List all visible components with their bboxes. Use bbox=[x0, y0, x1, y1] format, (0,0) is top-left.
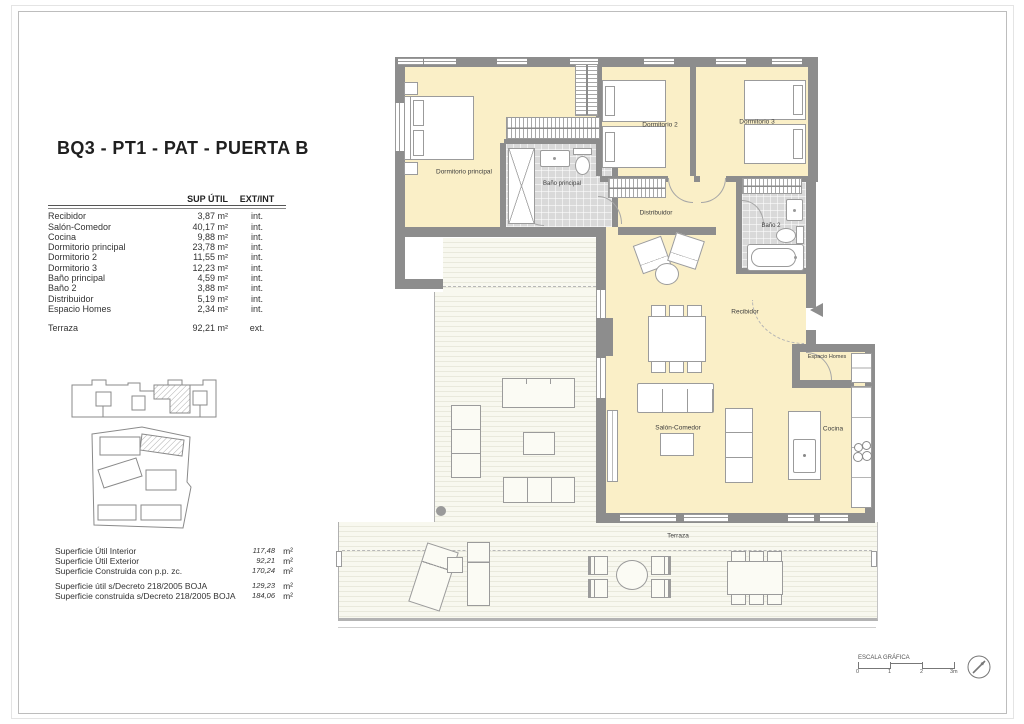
tv-sideboard bbox=[607, 410, 618, 482]
pillow bbox=[413, 100, 424, 126]
summary-row: Superficie Útil Exterior92,21m² bbox=[55, 556, 293, 566]
toilet bbox=[575, 156, 590, 175]
wall bbox=[792, 344, 875, 352]
table-row: Dormitorio 211,55 m²int. bbox=[48, 252, 286, 262]
room-label-espacio-homes: Espacio Homes bbox=[808, 354, 847, 360]
room-label-dormitorio-2: Dormitorio 2 bbox=[642, 122, 677, 129]
summary-row: Superficie construida s/Decreto 218/2005… bbox=[55, 591, 293, 601]
sliding-door bbox=[684, 514, 728, 522]
shower bbox=[508, 148, 535, 224]
partition bbox=[736, 182, 742, 274]
table-header-row: SUP ÚTIL EXT/INT bbox=[48, 194, 286, 204]
graphic-scale-title: ESCALA GRÁFICA bbox=[858, 655, 910, 661]
sliding-door bbox=[620, 514, 676, 522]
terrace-dashed-line bbox=[342, 550, 872, 551]
scale-tick bbox=[922, 662, 923, 669]
pillow bbox=[793, 129, 803, 159]
railing-post bbox=[871, 551, 877, 567]
page-title: BQ3 - PT1 - PAT - PUERTA B bbox=[57, 138, 309, 159]
toilet-tank bbox=[573, 148, 592, 155]
scale-tick bbox=[890, 662, 891, 669]
wardrobe bbox=[506, 117, 600, 139]
outdoor-sofa bbox=[502, 378, 575, 408]
room-label-dormitorio-principal: Dormitorio principal bbox=[436, 169, 492, 176]
sink-drain bbox=[793, 209, 796, 212]
side-table bbox=[655, 263, 679, 285]
wardrobe bbox=[575, 64, 598, 116]
wall bbox=[395, 57, 818, 67]
scale-tick bbox=[954, 662, 955, 669]
partition bbox=[500, 143, 506, 237]
table-row: Dormitorio principal23,78 m²int. bbox=[48, 242, 286, 252]
dining-table bbox=[648, 316, 706, 362]
outdoor-sofa bbox=[503, 477, 575, 503]
pillow bbox=[413, 130, 424, 156]
scale-tick-label: 1 bbox=[888, 669, 891, 675]
sun-lounger bbox=[467, 542, 490, 606]
outdoor-sofa bbox=[451, 405, 481, 478]
partition bbox=[504, 139, 618, 144]
wall bbox=[792, 380, 854, 388]
sink-drain bbox=[553, 157, 556, 160]
outdoor-chair bbox=[588, 579, 608, 598]
scale-tick bbox=[858, 662, 859, 669]
header-rule bbox=[48, 205, 286, 209]
outdoor-coffee-table bbox=[523, 432, 555, 455]
wall bbox=[694, 176, 700, 182]
scale-tick-label: 2 bbox=[920, 669, 923, 675]
table-row: Salón-Comedor40,17 m²int. bbox=[48, 222, 286, 232]
bathtub-basin bbox=[751, 248, 796, 267]
room-label-salon-comedor: Salón-Comedor bbox=[655, 425, 701, 432]
table-row: Dormitorio 312,23 m²int. bbox=[48, 263, 286, 273]
bathtub-drain bbox=[794, 256, 797, 259]
sofa bbox=[637, 383, 714, 413]
window bbox=[424, 58, 456, 65]
summary-row: Superficie Construida con p.p. zc.170,24… bbox=[55, 566, 293, 576]
room-label-terraza: Terraza bbox=[667, 533, 689, 540]
hob-burner bbox=[862, 451, 872, 461]
key-plan-floor bbox=[70, 377, 218, 421]
key-plan-site bbox=[84, 424, 196, 534]
pillow bbox=[605, 86, 615, 116]
faucet bbox=[803, 454, 806, 457]
window bbox=[716, 58, 746, 65]
table-row: Recibidor3,87 m²int. bbox=[48, 211, 286, 221]
terrace-dashed-line bbox=[443, 286, 596, 287]
scale-tick-label: 0 bbox=[856, 669, 859, 675]
wall bbox=[806, 180, 816, 308]
wall bbox=[395, 279, 443, 289]
nightstand bbox=[404, 82, 418, 95]
railing-post bbox=[336, 551, 342, 567]
window bbox=[596, 290, 606, 318]
window bbox=[772, 58, 802, 65]
scale-tick-label: 3m bbox=[950, 669, 958, 675]
col-header-type: EXT/INT bbox=[228, 194, 286, 204]
table-row: Espacio Homes2,34 m²int. bbox=[48, 304, 286, 314]
floorplan-sheet: BQ3 - PT1 - PAT - PUERTA B SUP ÚTIL EXT/… bbox=[0, 0, 1024, 724]
window bbox=[398, 58, 423, 65]
wardrobe bbox=[608, 178, 666, 198]
wall bbox=[808, 57, 818, 182]
coffee-table bbox=[660, 433, 694, 456]
room-label-bano-principal: Baño principal bbox=[543, 181, 581, 187]
table-row: Baño 23,88 m²int. bbox=[48, 283, 286, 293]
area-table: SUP ÚTIL EXT/INT Recibidor3,87 m²int. Sa… bbox=[48, 194, 286, 334]
outdoor-chair bbox=[651, 556, 671, 575]
summary-row: Superficie Útil Interior117,48m² bbox=[55, 546, 293, 556]
terrace-post bbox=[436, 506, 446, 516]
window bbox=[596, 358, 606, 398]
kitchen-tall-units bbox=[851, 353, 872, 383]
toilet bbox=[776, 228, 796, 243]
scale-segment bbox=[890, 663, 922, 669]
terrace-left-upper bbox=[443, 238, 596, 292]
scale-segment bbox=[858, 663, 890, 669]
table-row: Cocina9,88 m²int. bbox=[48, 232, 286, 242]
room-label-cocina: Cocina bbox=[823, 426, 843, 433]
table-row: Distribuidor5,19 m²int. bbox=[48, 294, 286, 304]
outdoor-chair bbox=[588, 556, 608, 575]
room-label-dormitorio-3: Dormitorio 3 bbox=[739, 119, 774, 126]
window bbox=[820, 514, 848, 522]
partition bbox=[618, 227, 716, 235]
chaise bbox=[725, 408, 753, 483]
room-label-recibidor: Recibidor bbox=[731, 309, 758, 316]
partition bbox=[690, 62, 696, 176]
north-arrow-icon bbox=[966, 654, 992, 680]
outdoor-side-table bbox=[447, 557, 463, 573]
table-row: Baño principal4,59 m²int. bbox=[48, 273, 286, 283]
outdoor-chair bbox=[651, 579, 671, 598]
terrace-boundary-line bbox=[338, 627, 876, 628]
col-header-area: SUP ÚTIL bbox=[164, 194, 228, 204]
entrance-arrow-icon bbox=[810, 303, 823, 317]
pillow bbox=[605, 132, 615, 162]
window bbox=[644, 58, 674, 65]
summary-row: Superficie útil s/Decreto 218/2005 BOJA1… bbox=[55, 581, 293, 591]
window bbox=[497, 58, 527, 65]
pillow bbox=[793, 85, 803, 115]
window bbox=[788, 514, 814, 522]
graphic-scale: ESCALA GRÁFICA 0 1 2 3m bbox=[856, 655, 976, 685]
wall-pier bbox=[596, 318, 613, 356]
table-row-terraza: Terraza92,21 m²ext. bbox=[48, 323, 286, 333]
surface-summary: Superficie Útil Interior117,48m² Superfi… bbox=[55, 546, 293, 601]
hob-burner bbox=[862, 441, 871, 450]
outdoor-round-table bbox=[616, 560, 648, 590]
wardrobe bbox=[742, 178, 802, 194]
outdoor-dining-table bbox=[727, 561, 783, 595]
room-label-distribuidor: Distribuidor bbox=[640, 210, 673, 217]
room-label-bano-2: Baño 2 bbox=[761, 223, 780, 229]
toilet-tank bbox=[796, 226, 804, 244]
nightstand bbox=[404, 162, 418, 175]
